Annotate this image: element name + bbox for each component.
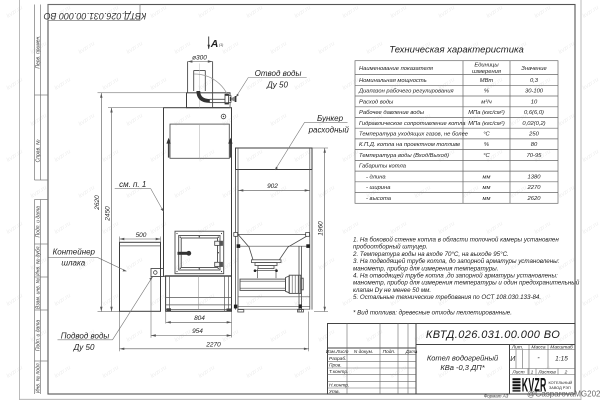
- svg-text:Отвод воды: Отвод воды: [255, 69, 302, 78]
- svg-text:Масштаб: Масштаб: [550, 345, 573, 351]
- svg-text:МПа (кгс/см²): МПа (кгс/см²): [468, 121, 505, 127]
- svg-text:4. На отводящей трубе котла ,: 4. На отводящей трубе котла ,до запорной…: [353, 273, 558, 280]
- svg-text:расходный: расходный: [308, 126, 350, 135]
- svg-text:0,02(0,2): 0,02(0,2): [522, 121, 545, 127]
- svg-text:%: %: [484, 142, 489, 148]
- svg-text:измерения: измерения: [472, 69, 501, 75]
- svg-text:2: 2: [564, 370, 568, 376]
- svg-text:- высота: - высота: [366, 196, 392, 202]
- svg-text:Разраб.: Разраб.: [329, 356, 346, 362]
- svg-text:1960: 1960: [318, 221, 325, 236]
- svg-text:Ду 50: Ду 50: [266, 80, 288, 89]
- svg-text:клапан Dу не менее 50 мм.: клапан Dу не менее 50 мм.: [353, 287, 431, 294]
- svg-text:Гидравлическое сопротивление к: Гидравлическое сопротивление котла: [359, 121, 466, 127]
- svg-text:500: 500: [136, 232, 147, 239]
- svg-text:N докум.: N докум.: [354, 349, 373, 355]
- svg-text:954: 954: [192, 328, 203, 335]
- svg-text:250: 250: [528, 132, 539, 138]
- svg-text:мм: мм: [483, 174, 491, 180]
- svg-text:2620: 2620: [94, 195, 101, 211]
- svg-text:Температура уходящих газов, не: Температура уходящих газов, не более: [359, 132, 469, 138]
- svg-text:Наименование показателя: Наименование показателя: [359, 66, 433, 72]
- svg-text:К.П.Д. котла на проектном топл: К.П.Д. котла на проектном топливе: [359, 142, 461, 148]
- svg-text:Рабочее давление воды: Рабочее давление воды: [359, 110, 425, 116]
- svg-text:- длина: - длина: [366, 174, 386, 180]
- svg-text:°С: °С: [483, 153, 490, 159]
- svg-text:А: А: [210, 38, 219, 50]
- svg-text:шлака: шлака: [61, 259, 85, 268]
- svg-text:2. Температура воды на входе: 2. Температура воды на входе 70°С, на вы…: [352, 251, 509, 258]
- svg-text:Взам. инв. №: Взам. инв. №: [36, 277, 42, 309]
- svg-text:КВТД.026.031.00.000 ВО: КВТД.026.031.00.000 ВО: [44, 11, 147, 21]
- svg-text:Единицы: Единицы: [474, 63, 499, 69]
- svg-text:Утв.: Утв.: [329, 389, 340, 395]
- svg-text:Номинальная мощность: Номинальная мощность: [359, 78, 427, 84]
- svg-text:КОТЕЛЬНЫЙ: КОТЕЛЬНЫЙ: [549, 381, 573, 385]
- svg-text:Значение: Значение: [521, 66, 547, 72]
- svg-text:@GasparovaMG2021: @GasparovaMG2021: [527, 389, 600, 398]
- svg-text:Бункер: Бункер: [317, 114, 344, 123]
- svg-text:5. Остальные технические треб: 5. Остальные технические требования по О…: [353, 294, 541, 301]
- svg-text:3. На подводящей трубе котла,: 3. На подводящей трубе котла, до запорно…: [353, 258, 560, 265]
- svg-text:1. На боковой стенке котла в: 1. На боковой стенке котла в области топ…: [353, 237, 559, 244]
- svg-text:Подп. и дата: Подп. и дата: [36, 320, 42, 352]
- svg-text:Подвод воды: Подвод воды: [61, 332, 110, 341]
- svg-text:Изм.Лист: Изм.Лист: [326, 349, 349, 355]
- svg-text:ø300: ø300: [192, 54, 207, 61]
- svg-text:2450: 2450: [105, 206, 112, 222]
- svg-text:2270: 2270: [527, 185, 542, 191]
- svg-text:70-95: 70-95: [527, 153, 543, 159]
- svg-text:°С: °С: [483, 132, 490, 138]
- svg-text:Контейнер: Контейнер: [53, 248, 96, 257]
- svg-text:Габариты котла: Габариты котла: [359, 164, 407, 170]
- svg-text:804: 804: [194, 315, 205, 322]
- svg-text:Справ. №: Справ. №: [36, 139, 42, 162]
- svg-text:2620: 2620: [527, 196, 542, 202]
- svg-text:Ду 50: Ду 50: [73, 343, 95, 352]
- svg-text:Инв. № подл.: Инв. № подл.: [36, 362, 42, 393]
- svg-text:мм: мм: [483, 185, 491, 191]
- svg-text:КВТД.026.031.00.000 ВО: КВТД.026.031.00.000 ВО: [426, 329, 560, 341]
- svg-text:10: 10: [531, 99, 538, 105]
- svg-text:- ширина: - ширина: [366, 185, 391, 191]
- svg-text:Подп. и дата: Подп. и дата: [36, 206, 42, 238]
- svg-text:Масса: Масса: [531, 345, 546, 351]
- svg-text:пробоотборный штуцер.: пробоотборный штуцер.: [353, 244, 428, 251]
- svg-text:манометр, прибор для измерения: манометр, прибор для измерения температу…: [353, 265, 498, 272]
- svg-text:Пров.: Пров.: [329, 363, 342, 369]
- svg-text:Подп.: Подп.: [383, 349, 396, 355]
- svg-text:мм: мм: [483, 196, 491, 202]
- svg-text:манометр, прибор для измерения: манометр, прибор для измерения температу…: [353, 280, 580, 287]
- svg-text:Н.контр.: Н.контр.: [329, 383, 349, 389]
- svg-text:30-100: 30-100: [525, 89, 544, 95]
- svg-text:1380: 1380: [528, 174, 542, 180]
- svg-text:Диапазон рабочего регулировани: Диапазон рабочего регулирования: [358, 89, 454, 95]
- svg-text:Расход воды: Расход воды: [359, 99, 394, 105]
- svg-text:см. п. 1: см. п. 1: [119, 180, 146, 189]
- svg-text:1:15: 1:15: [555, 356, 568, 363]
- svg-text:КВа -0,3 ДП*: КВа -0,3 ДП*: [440, 363, 485, 372]
- svg-text:МВт: МВт: [480, 78, 494, 84]
- svg-text:Перв. примен.: Перв. примен.: [36, 35, 42, 68]
- svg-text:Инв. № дубл.: Инв. № дубл.: [36, 245, 42, 276]
- svg-text:Лит.: Лит.: [511, 345, 523, 351]
- svg-text:Формат А3: Формат А3: [484, 394, 509, 399]
- svg-text:2270: 2270: [205, 342, 221, 349]
- svg-text:0,6(6,0): 0,6(6,0): [524, 110, 544, 116]
- svg-text:80: 80: [531, 142, 538, 148]
- svg-text:МПа (кгс/см²): МПа (кгс/см²): [468, 110, 505, 116]
- svg-text:902: 902: [267, 183, 278, 190]
- svg-text:Т.контр.: Т.контр.: [329, 369, 348, 375]
- svg-text:Техническая характеристика: Техническая характеристика: [389, 45, 524, 56]
- svg-text:%: %: [484, 89, 489, 95]
- svg-text:* Вид топлива: древесные отх: * Вид топлива: древесные отходы пеллетир…: [353, 310, 512, 317]
- svg-text:Дата: Дата: [405, 349, 418, 354]
- svg-text:Температура воды (Вход/Выход): Температура воды (Вход/Выход): [359, 153, 449, 159]
- svg-text:(1): (1): [219, 43, 223, 47]
- svg-text:м³/ч: м³/ч: [481, 99, 492, 105]
- svg-text:Котел водогрейный: Котел водогрейный: [427, 354, 499, 363]
- svg-text:0,3: 0,3: [530, 78, 539, 84]
